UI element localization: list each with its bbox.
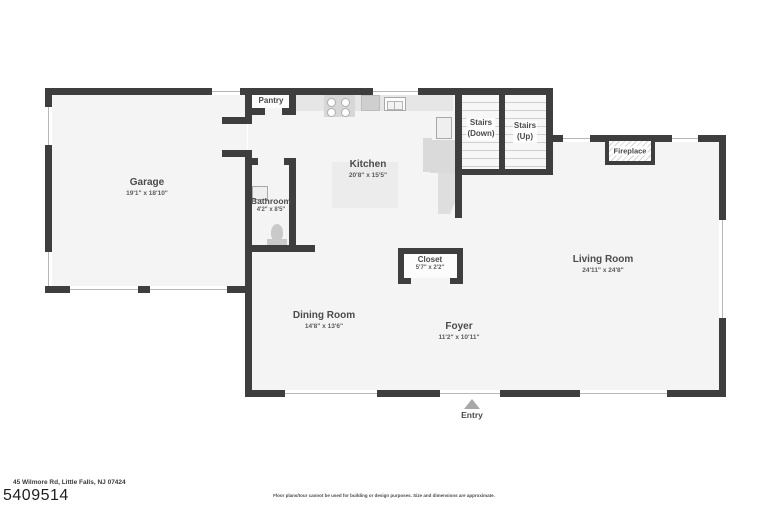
- mls-number: 5409514: [3, 487, 69, 505]
- wall: [245, 245, 315, 252]
- wall: [667, 390, 726, 397]
- bathroom-label: Bathroom 4'2" x 8'5": [251, 196, 291, 214]
- window: [45, 107, 52, 145]
- dishwasher: [361, 95, 380, 111]
- property-address: 45 Wilmore Rd, Little Falls, NJ 07424: [13, 479, 126, 486]
- wall: [398, 278, 411, 284]
- wall: [45, 88, 212, 95]
- wall: [398, 248, 463, 254]
- wall: [455, 169, 553, 175]
- wall: [138, 286, 150, 293]
- wall: [698, 135, 726, 142]
- wall: [245, 158, 258, 165]
- closet-label: Closet 5'7" x 2'2": [416, 255, 445, 273]
- window: [212, 88, 240, 95]
- wall: [45, 286, 70, 293]
- wall: [499, 95, 505, 175]
- stove-burners-icon: [327, 98, 353, 115]
- wall: [222, 117, 252, 124]
- kitchen-counter-peninsula: [430, 140, 458, 173]
- wall: [719, 142, 726, 220]
- living-room-label: Living Room 24'11" x 24'8": [573, 254, 634, 275]
- garage-label: Garage 19'1" x 18'10": [126, 177, 168, 198]
- window: [672, 135, 698, 142]
- wall: [418, 88, 553, 95]
- window: [563, 135, 590, 142]
- kitchen-label: Kitchen 20'8" x 15'5": [349, 159, 387, 180]
- wall: [227, 286, 252, 293]
- window: [45, 252, 52, 286]
- stairs-up-label: Stairs (Up): [513, 121, 537, 143]
- fireplace: Fireplace: [605, 137, 655, 165]
- dining-room-label: Dining Room 14'8" x 13'6": [293, 310, 355, 331]
- window: [580, 390, 667, 397]
- wall: [450, 278, 463, 284]
- window: [719, 220, 726, 318]
- window: [285, 390, 377, 397]
- stairs-down-label: Stairs (Down): [466, 118, 495, 140]
- wall: [719, 318, 726, 397]
- window: [373, 88, 418, 95]
- entry-label: Entry: [461, 410, 483, 421]
- kitchen-sink-icon: [384, 97, 406, 111]
- foyer-label: Foyer 11'2" x 10'11": [438, 321, 479, 342]
- wall: [377, 390, 440, 397]
- wall: [45, 145, 52, 252]
- floor-plan: Fireplace Garage 19'1" x 18'10" Pantry K…: [0, 0, 768, 512]
- wall: [546, 135, 563, 142]
- entry-door-opening: [440, 390, 500, 397]
- wall: [222, 150, 252, 157]
- wall: [240, 88, 373, 95]
- entry-arrow-icon: [464, 399, 480, 409]
- wall: [45, 95, 52, 107]
- wall: [455, 88, 462, 218]
- garage-door: [70, 286, 138, 293]
- wall: [245, 150, 252, 397]
- wall: [282, 108, 296, 115]
- wall: [252, 108, 265, 115]
- fireplace-label: Fireplace: [613, 147, 648, 156]
- disclaimer-text: Floor plans/tour cannot be used for buil…: [273, 493, 495, 498]
- pantry-label: Pantry: [259, 96, 284, 106]
- wall: [500, 390, 580, 397]
- refrigerator: [436, 117, 452, 139]
- wall: [284, 158, 296, 165]
- garage-door: [150, 286, 227, 293]
